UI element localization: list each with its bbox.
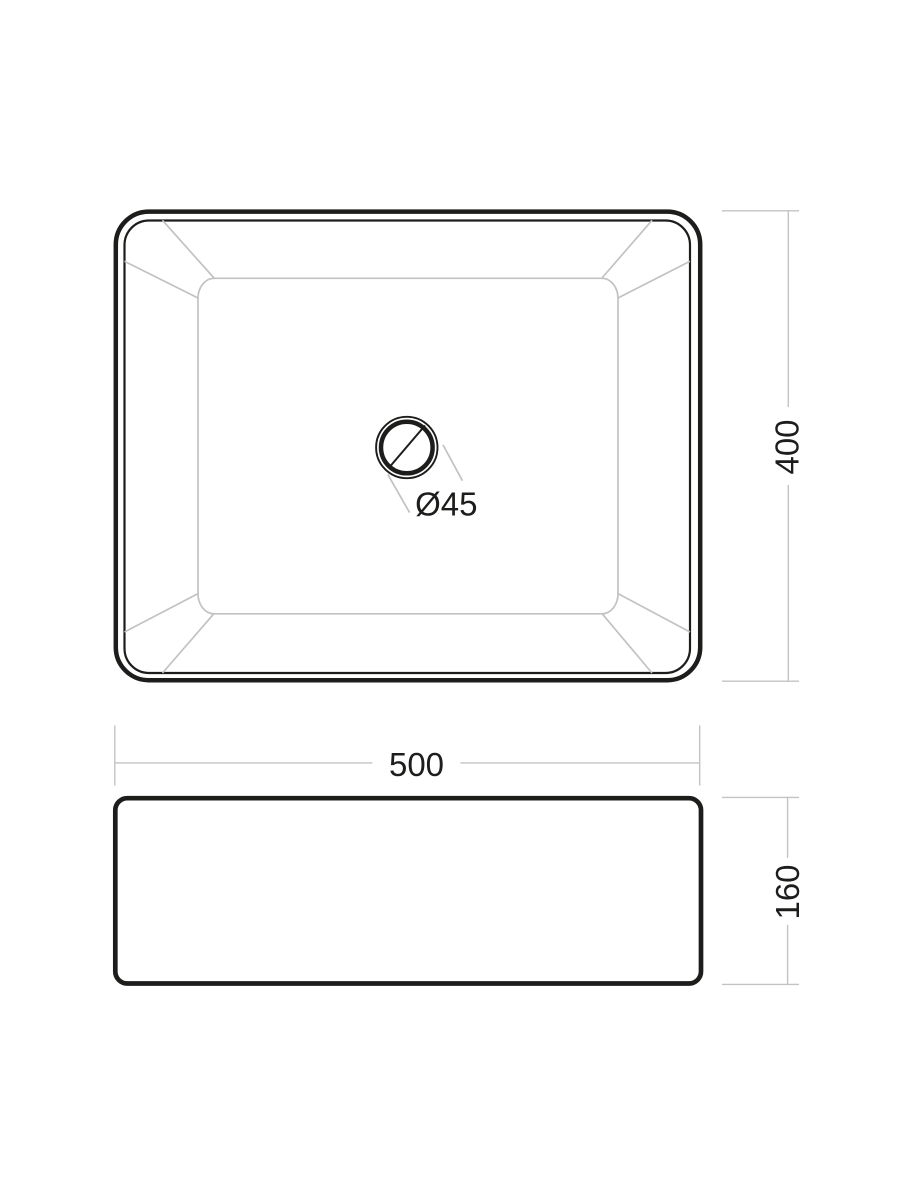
svg-text:400: 400 — [768, 419, 805, 474]
svg-text:500: 500 — [389, 746, 444, 783]
svg-text:160: 160 — [769, 864, 806, 919]
svg-text:Ø45: Ø45 — [415, 486, 477, 523]
